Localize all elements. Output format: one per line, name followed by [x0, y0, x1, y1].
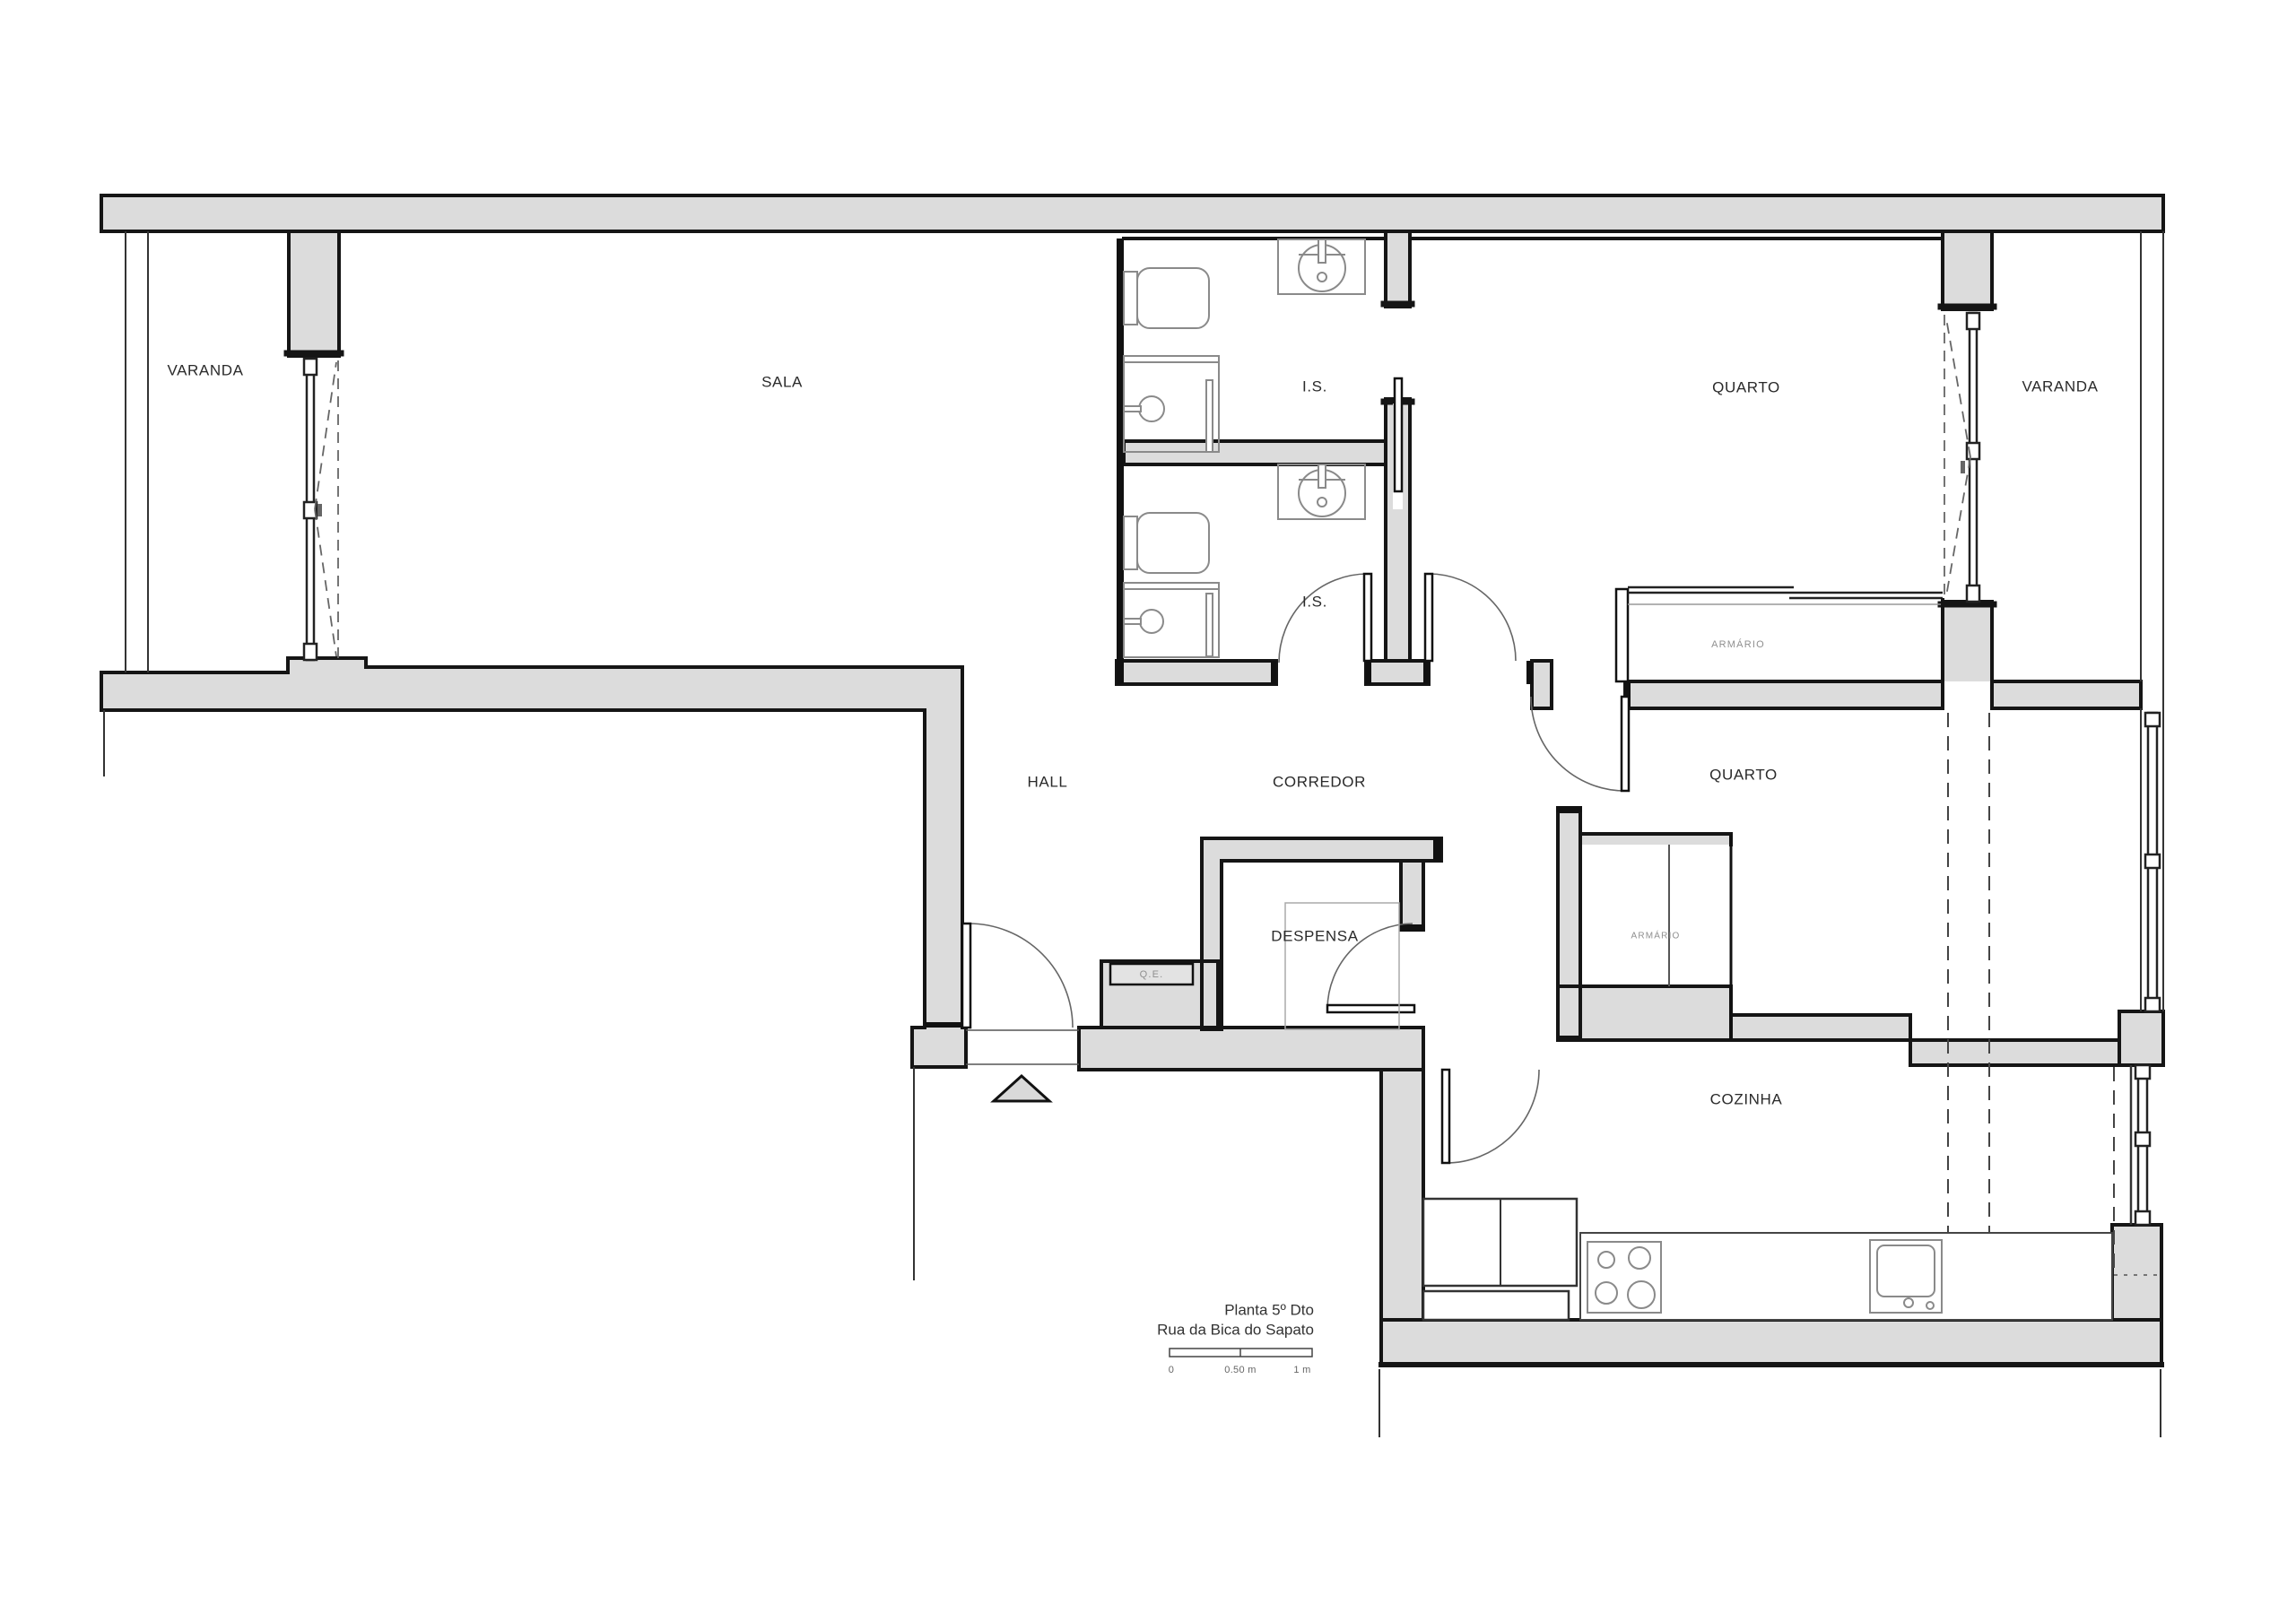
entrance-arrow-icon — [994, 1076, 1049, 1101]
entrance-door — [962, 924, 1073, 1028]
kitchen-fixtures — [1423, 1199, 2112, 1320]
label-armario-mid: ARMÁRIO — [1631, 930, 1680, 941]
kitchen-counter — [1580, 1233, 2112, 1320]
scale-bar: 0 0.50 m 1 m — [1169, 1349, 1312, 1375]
plan-title-line1: Planta 5º Dto — [1224, 1302, 1314, 1319]
projection-dashed-lines — [1423, 713, 2161, 1275]
scale-zero: 0 — [1169, 1365, 1174, 1375]
wall-fills — [101, 195, 2163, 1365]
label-quarto-top: QUARTO — [1712, 379, 1780, 396]
floor-plan-page: Q.E. VARANDA SALA I.S. QUARTO VARANDA I.… — [0, 0, 2296, 1622]
bedroom-top-door — [1425, 574, 1516, 661]
wall-outlines — [101, 195, 2163, 1365]
label-hall: HALL — [1028, 774, 1068, 791]
label-quarto-right: QUARTO — [1709, 767, 1778, 784]
scale-middle: 0.50 m — [1224, 1365, 1256, 1375]
bathroom-top-fixtures — [1124, 239, 1365, 452]
electrical-panel-label: Q.E. — [1140, 969, 1164, 980]
kitchen-east-window — [2135, 1065, 2150, 1225]
label-is-bottom: I.S. — [1302, 594, 1327, 611]
toilet-icon — [1124, 516, 1137, 569]
floor-plan-drawing: Q.E. VARANDA SALA I.S. QUARTO VARANDA I.… — [0, 0, 2296, 1622]
shower-icon — [1124, 356, 1219, 452]
title-block: Planta 5º Dto Rua da Bica do Sapato — [1157, 1302, 1314, 1339]
label-varanda-left: VARANDA — [167, 362, 243, 379]
scale-end: 1 m — [1293, 1365, 1310, 1375]
pocket-sliding-door — [1395, 378, 1402, 491]
electrical-panel: Q.E. — [1110, 964, 1193, 984]
plan-title-line2: Rua da Bica do Sapato — [1157, 1322, 1314, 1339]
label-sala: SALA — [761, 374, 803, 391]
balcony-window-right — [1944, 313, 1979, 602]
label-cozinha: COZINHA — [1710, 1091, 1783, 1108]
bedroom-right-door — [1531, 697, 1629, 791]
bedroom-east-window — [2145, 713, 2160, 1011]
kitchen-door — [1442, 1070, 1539, 1163]
label-armario-top: ARMÁRIO — [1711, 638, 1765, 650]
closet-top — [1616, 587, 1943, 681]
label-corredor: CORREDOR — [1273, 774, 1366, 791]
bathroom-bottom-door — [1279, 574, 1371, 663]
label-is-top: I.S. — [1302, 378, 1327, 395]
kitchen-cabinet — [1423, 1291, 1569, 1320]
bathroom-bottom-fixtures — [1124, 464, 1365, 657]
bathroom-west-wall — [1117, 239, 1124, 684]
label-despensa: DESPENSA — [1271, 928, 1358, 945]
toilet-icon — [1124, 272, 1137, 325]
balcony-window-left — [304, 359, 338, 660]
label-varanda-right: VARANDA — [2022, 378, 2098, 395]
